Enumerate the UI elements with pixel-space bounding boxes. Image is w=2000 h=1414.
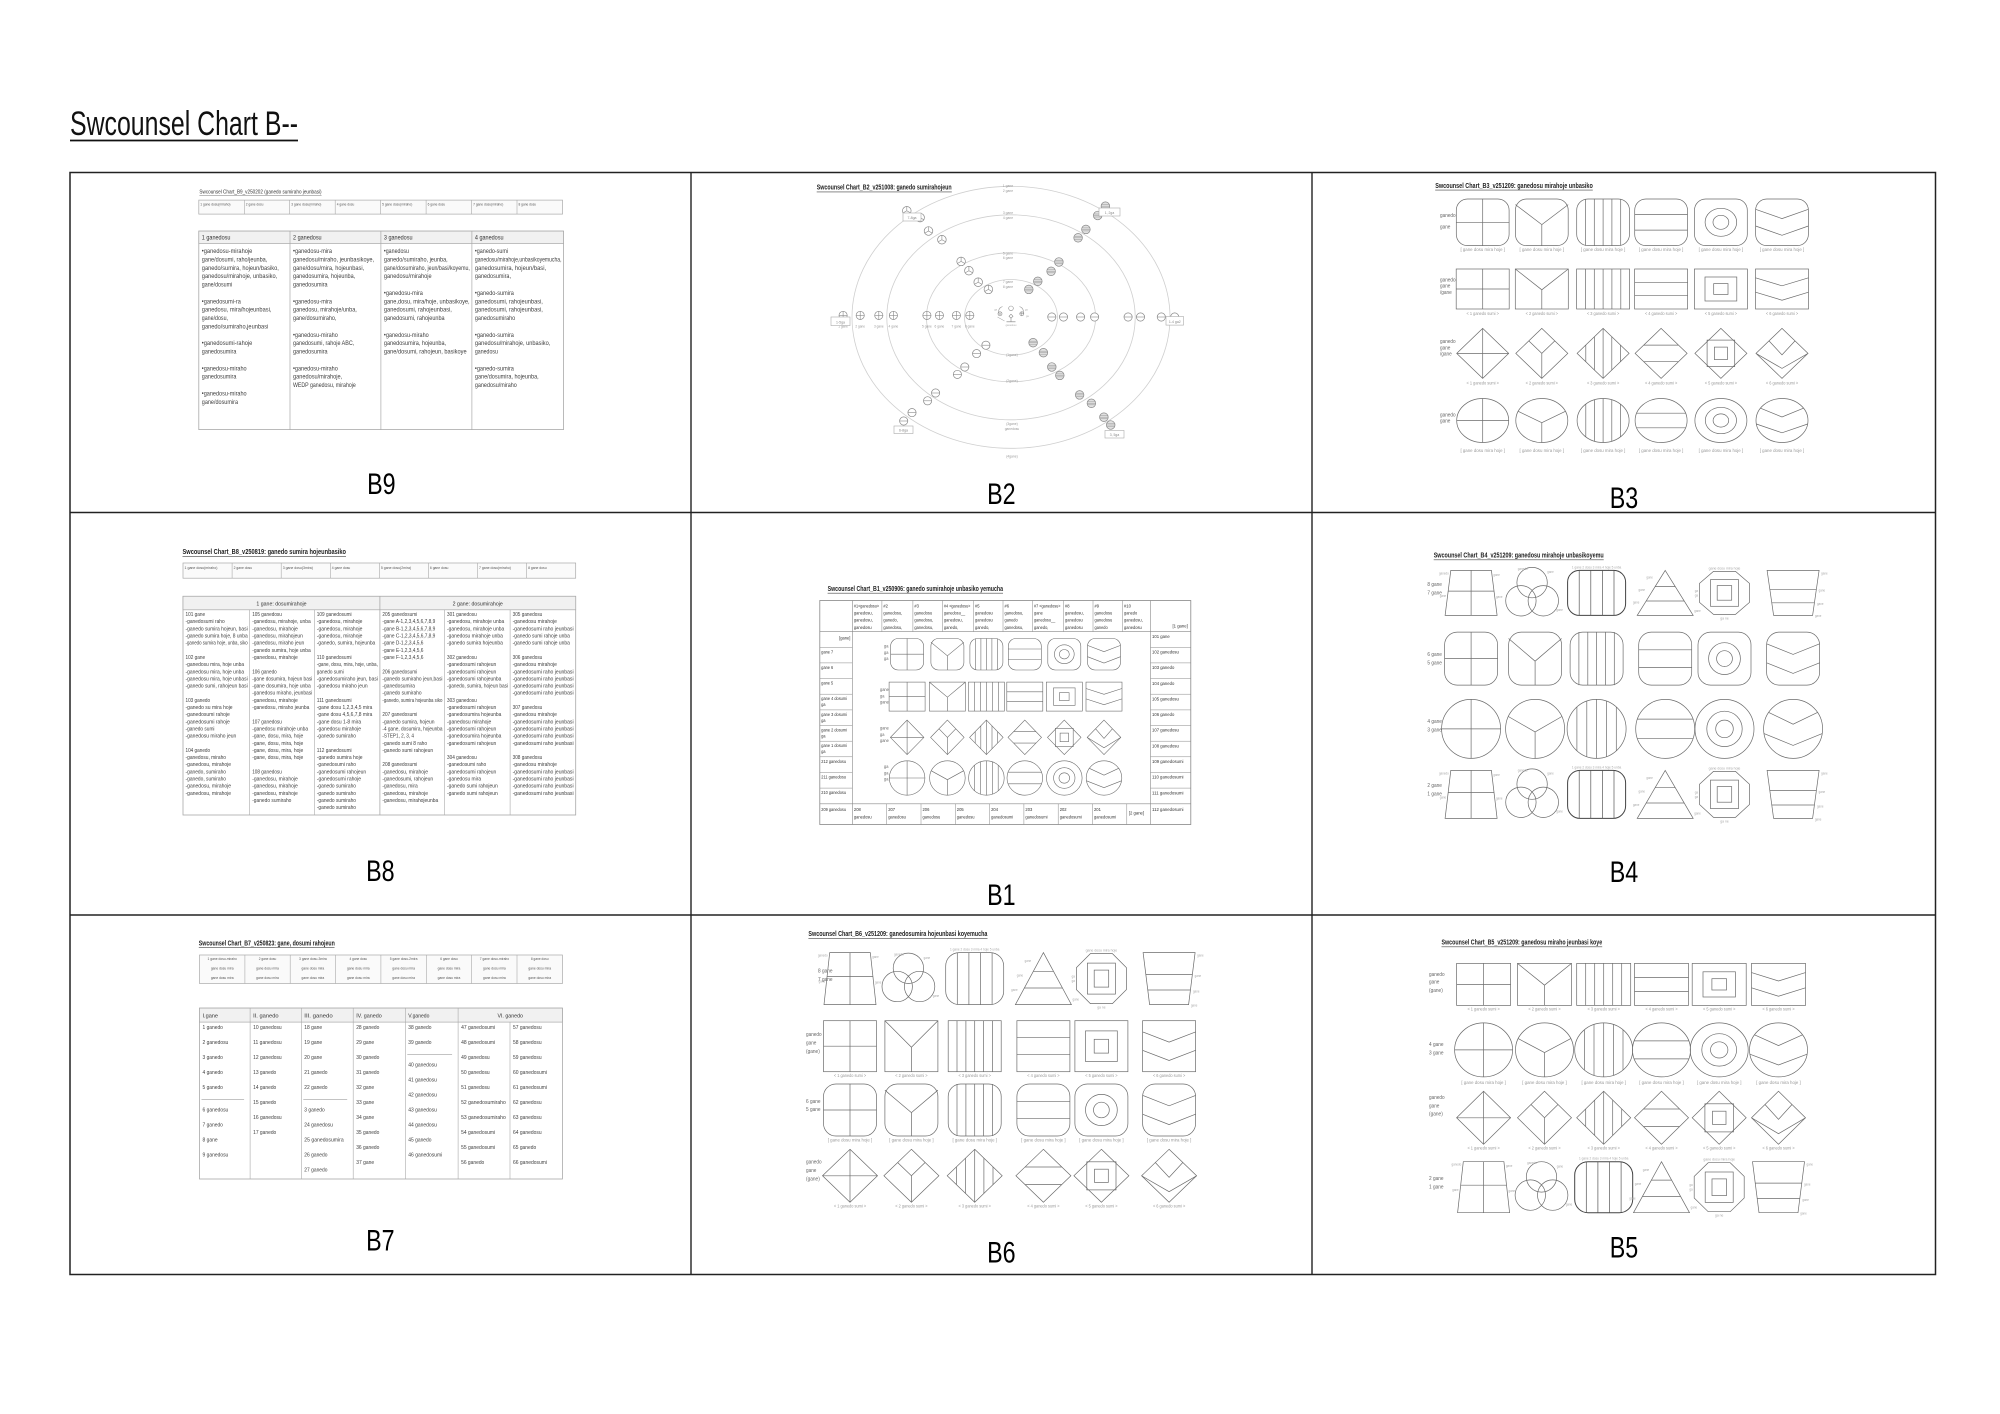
svg-text:Swcounsel Chart B--: Swcounsel Chart B-- [70,105,298,143]
svg-text:-ganedosu mirahoje: -ganedosu mirahoje [513,619,557,625]
svg-text:< 1 ganedo sumi >: < 1 ganedo sumi > [834,1073,867,1078]
svg-text:103 ganedo: 103 ganedo [1152,665,1175,671]
svg-text:ganedosu: ganedosu [923,814,941,819]
svg-text:gane: gane [1496,797,1503,801]
svg-text:-gane, dosu, mira, hoje: -gane, dosu, mira, hoje [252,734,303,740]
svg-text:-ganedosu, mirahoje: -ganedosu, mirahoje [317,619,363,625]
svg-text:-ganedosumi rahojeunba: -ganedosumi rahojeunba [447,676,501,682]
svg-text:55 ganedosumi: 55 ganedosumi [461,1145,495,1151]
svg-text:gane: gane [1639,588,1646,592]
svg-text:gane dosu mira hoje: gane dosu mira hoje [1086,949,1118,953]
svg-text:[ gane dosu mira hoje ]: [ gane dosu mira hoje ] [1520,247,1565,252]
svg-text:ganedosu,: ganedosu, [914,625,933,630]
svg-text:< 2 ganedo sumi >: < 2 ganedo sumi > [1528,1007,1561,1012]
svg-text:gane: gane [1807,1163,1814,1167]
svg-text:-ganedosumi raho jeunbasi: -ganedosumi raho jeunbasi [513,791,574,797]
svg-text:ganedosumi: ganedosumi [991,814,1013,819]
svg-text:1 gane 2 dosu 3 mira 4 hoje 5: 1 gane 2 dosu 3 mira 4 hoje 5 unba [1572,565,1621,569]
svg-text:-ganedo sumira hoje, unba, sik: -ganedo sumira hoje, unba, siko [186,641,248,647]
svg-text:2 gane: 2 gane [1427,783,1442,789]
svg-text:ganedosu,: ganedosu, [883,625,902,630]
svg-text:gane/dosumira, hojeunba,: gane/dosumira, hojeunba, [475,375,539,381]
svg-text:-ganedosu, mirahoje: -ganedosu, mirahoje [186,791,232,797]
svg-text:15 ganedo: 15 ganedo [253,1100,276,1106]
svg-text:-ganedosumi raho jeunbasi: -ganedosumi raho jeunbasi [513,669,574,675]
svg-text:ganedosumira: ganedosumira [202,350,237,356]
svg-text:2 gane dosu: 2 gane dosu [259,957,277,961]
svg-text:ga: ga [884,650,889,655]
svg-text:-ganedosu mirahoje: -ganedosu mirahoje [317,727,361,733]
svg-text:1 gane 2 dosu 3 mira 4 hoje 5: 1 gane 2 dosu 3 mira 4 hoje 5 unba [1572,765,1621,769]
svg-text:ga: ga [1695,795,1698,799]
svg-text:206 ganedosumi: 206 ganedosumi [382,669,417,675]
svg-text:39 ganedo: 39 ganedo [408,1040,431,1046]
svg-text:[1 gane]: [1 gane] [1173,624,1188,629]
svg-text:-ganedosumi raho jeunbasi: -ganedosumi raho jeunbasi [513,734,574,740]
svg-text:18 gane: 18 gane [304,1025,322,1031]
svg-text:(gane): (gane) [806,1177,820,1183]
svg-text:(1gane): (1gane) [1006,353,1018,357]
svg-text:-ganedosu mirahoje: -ganedosu mirahoje [513,712,557,718]
svg-text:-ganedosu, mirahojeun: -ganedosu, mirahojeun [252,634,303,640]
svg-text:ganedo: ganedo [1527,1161,1537,1165]
svg-text:2 ganedosu: 2 ganedosu [203,1040,229,1046]
svg-text:ganedosu: ganedosu [914,611,932,616]
svg-text:-ganedosu, mirahoje: -ganedosu, mirahoje [252,791,298,797]
svg-text:-ganedosu, mirahojeunba: -ganedosu, mirahojeunba [382,798,438,804]
svg-text:32 gane: 32 gane [356,1085,374,1091]
svg-text:[ gane dosu mira hoje ]: [ gane dosu mira hoje ] [1639,247,1684,252]
svg-text:6 gane: 6 gane [1427,652,1442,658]
svg-text:112 ganedosumi: 112 ganedosumi [317,748,352,754]
svg-text:3 gane dosu(3mira): 3 gane dosu(3mira) [283,566,314,570]
svg-text:gane: gane [1646,776,1653,780]
svg-text:ganedo: ganedo [1452,1163,1462,1167]
svg-text:-ganedosumi rahoje: -ganedosumi rahoje [186,712,230,718]
svg-text:ganedosumi, rahojeunbasi,: ganedosumi, rahojeunbasi, [475,299,543,305]
svg-text:-4 gane, dosumira, hojeunba: -4 gane, dosumira, hojeunba [382,727,442,733]
svg-text:-ganedosumi rahojeun: -ganedosumi rahojeun [447,669,496,675]
svg-text:3 gane dosu(miraho): 3 gane dosu(miraho) [291,203,321,207]
svg-text:-ganedosu mirahoje unba: -ganedosu mirahoje unba [252,727,308,733]
svg-text:-ganedosumi rahojeun: -ganedosumi rahojeun [447,705,496,711]
svg-text:Swcounsel Chart_B4_v251209: ga: Swcounsel Chart_B4_v251209: ganedosu mir… [1434,551,1604,560]
svg-text:-ganedosu, mirahoje: -ganedosu, mirahoje [186,762,232,768]
svg-text:gane: gane [1817,804,1824,808]
svg-text:ganedosumi, rahojeunba: ganedosumi, rahojeunba [384,316,445,322]
svg-text:•ganedosu-mira: •ganedosu-mira [384,291,424,297]
svg-text:-ganedosu, mirahoje: -ganedosu, mirahoje [382,791,428,797]
svg-text:gane dosu mira hoje: gane dosu mira hoje [1709,766,1741,770]
svg-text:gane: gane [1629,1196,1636,1200]
svg-text:ga: ga [1695,790,1698,794]
svg-text:37 gane: 37 gane [356,1160,374,1166]
svg-text:-ganedo, sumira hojeunba siko: -ganedo, sumira hojeunba siko [382,698,442,704]
svg-text:41 ganedosu: 41 ganedosu [408,1077,437,1083]
svg-text:3 ganedosu: 3 ganedosu [384,235,413,242]
svg-text:ga ne: ga ne [1715,1214,1723,1218]
svg-text:6 gane: 6 gane [1003,256,1013,260]
svg-text:4 gane dosu: 4 gane dosu [337,203,355,207]
svg-text:< 1 ganedo sumi >: < 1 ganedo sumi > [834,1203,867,1208]
svg-text:8 gane: 8 gane [1427,582,1442,588]
svg-text:102 ganedosu: 102 ganedosu [1152,650,1179,656]
svg-text:ganedosu/mirahoje: ganedosu/mirahoje [384,274,432,280]
svg-text:ganedo/sumira, hojeun/basiko,: ganedo/sumira, hojeun/basiko, [202,266,279,272]
svg-text:gane: gane [1547,570,1554,574]
svg-text:[ gane dosu mira hoje ]: [ gane dosu mira hoje ] [952,1138,997,1143]
svg-text:305 ganedosu: 305 ganedosu [513,612,543,618]
svg-text:[ gane dosu mira hoje ]: [ gane dosu mira hoje ] [1756,1080,1801,1085]
svg-text:V.ganedo: V.ganedo [408,1013,429,1019]
svg-text:< 3 ganedo sumi >: < 3 ganedo sumi > [1588,1146,1621,1151]
svg-text:ganedosu/miraho, jeunbasikoye,: ganedosu/miraho, jeunbasikoye, [293,258,374,264]
svg-text:ganedosu, mira/hojeunbasi,: ganedosu, mira/hojeunbasi, [202,308,272,314]
svg-text:8 gane: 8 gane [818,968,833,974]
svg-text:8 gane dosu: 8 gane dosu [531,957,549,961]
svg-text:Swcounsel Chart_B2_v251008: ga: Swcounsel Chart_B2_v251008: ganedo sumir… [817,183,952,192]
svg-text:28 ganedo: 28 ganedo [356,1025,379,1031]
svg-text:1 ganedo: 1 ganedo [203,1025,223,1031]
svg-text:ganedosu,: ganedosu, [1065,611,1084,616]
svg-text:5 ganedo: 5 ganedo [203,1085,223,1091]
svg-text:-ganedo sumi rahojeun: -ganedo sumi rahojeun [447,791,498,797]
svg-text:209 ganedosu: 209 ganedosu [821,807,846,812]
svg-text:•ganedosu-miraho: •ganedosu-miraho [202,391,247,397]
svg-text:ganedo/sumiraho,jeunbasi: ganedo/sumiraho,jeunbasi [202,324,268,330]
svg-text:[ gane dosu mira hoje ]: [ gane dosu mira hoje ] [1697,1080,1742,1085]
svg-text:7 gane: 7 gane [952,325,962,329]
svg-text:-ganedosumi raho jeunbasi: -ganedosumi raho jeunbasi [513,691,574,697]
svg-text:107 ganedosu: 107 ganedosu [1152,728,1179,734]
svg-text:-gane, dosu, mira, hoje: -gane, dosu, mira, hoje [252,755,303,761]
svg-text:gane 7: gane 7 [821,649,833,654]
svg-text:B9: B9 [367,468,396,501]
svg-text:26 ganedo: 26 ganedo [304,1152,327,1158]
svg-text:gane dosu mira: gane dosu mira [256,967,279,971]
svg-text:gane: gane [880,726,889,731]
svg-text:gane: gane [933,994,940,998]
svg-text:7 gane dosu(miraho): 7 gane dosu(miraho) [473,203,503,207]
svg-text:102 gane: 102 gane [186,655,206,661]
svg-text:ganedosu: ganedosu [888,814,906,819]
svg-text:-gane B-1,2,3,4,5,6,7,8,9: -gane B-1,2,3,4,5,6,7,8,9 [382,626,435,632]
svg-text:-ganedo sumiraho: -ganedo sumiraho [317,791,356,797]
svg-text:gane dosu mira: gane dosu mira [438,967,461,971]
svg-text:63 ganedosu: 63 ganedosu [513,1115,542,1121]
svg-text:•ganedosu-mira: •ganedosu-mira [293,249,333,255]
svg-text:gane: gane [1493,573,1500,577]
svg-text:< 4 ganedo sumi >: < 4 ganedo sumi > [1645,311,1678,316]
svg-text:gane: gane [872,955,879,959]
svg-text:ganedosu/mirahoje,unbasikoyemu: ganedosu/mirahoje,unbasikoyemucha, [475,258,562,264]
svg-text:•ganedosu-mira: •ganedosu-mira [293,299,333,305]
svg-text:65 ganedo: 65 ganedo [513,1145,536,1151]
svg-text:-ganedo, sumiraho: -ganedo, sumiraho [186,769,227,775]
svg-text:6 gane dosu: 6 gane dosu [430,566,449,570]
svg-text:ga: ga [1026,314,1029,318]
svg-text:24 ganedosu: 24 ganedosu [304,1122,333,1128]
svg-text:gane: gane [1802,1198,1809,1202]
svg-text:27 ganedo: 27 ganedo [304,1167,327,1173]
svg-text:-ganedosu mirahoje unba: -ganedosu mirahoje unba [447,634,503,640]
svg-text:B7: B7 [366,1224,395,1257]
svg-text:-gane dosumira, hoje unba: -gane dosumira, hoje unba [252,684,311,690]
svg-text:(2gane): (2gane) [1006,379,1018,383]
svg-text:ga: ga [1072,979,1075,983]
svg-text:14 ganedo: 14 ganedo [253,1085,276,1091]
svg-text:gane: gane [1452,1188,1459,1192]
svg-text:1 gane: 1 gane [1427,791,1442,797]
svg-text:51 ganedosu: 51 ganedosu [461,1085,490,1091]
svg-text:gane: gane [924,956,931,960]
svg-text:gane/dosumi, rahojeun, basikoy: gane/dosumi, rahojeun, basikoye [384,350,467,356]
svg-text:-ganedo sumi: -ganedo sumi [186,727,215,733]
svg-text:ganedosu: ganedosu [1006,323,1017,327]
svg-text:[ gane dosu mira hoje ]: [ gane dosu mira hoje ] [1461,1080,1506,1085]
svg-text:5 gane: 5 gane [806,1107,821,1113]
svg-text:ganedosumi: ganedosumi [1094,814,1116,819]
svg-text:ganedo: ganedo [1440,413,1456,419]
svg-text:-ganedo sumiraho: -ganedo sumiraho [252,798,291,804]
svg-text:-ganedo sumi rahojeun: -ganedo sumi rahojeun [447,784,498,790]
svg-text:ga: ga [821,702,826,707]
svg-text:gane/dosu,: gane/dosu, [202,316,228,322]
svg-text:gane dosu mira: gane dosu mira [392,967,415,971]
svg-text:-ganedo sumira, hoje unba: -ganedo sumira, hoje unba [252,648,311,654]
svg-text:-gane, dosu, mira, hoje, unba,: -gane, dosu, mira, hoje, unba, [317,662,378,668]
svg-text:gane dosu mira hoje: gane dosu mira hoje [1703,1158,1735,1162]
svg-text:ganedosu: ganedosu [1124,625,1142,630]
svg-text:gane: gane [1025,959,1032,963]
svg-text:205 ganedosumi: 205 ganedosumi [382,612,417,618]
svg-text:1 gane dosu(miraho): 1 gane dosu(miraho) [185,566,219,570]
svg-text:ganedosu,: ganedosu, [1005,625,1024,630]
svg-text:66 ganedosumi: 66 ganedosumi [513,1160,547,1166]
svg-text:< 1 ganedo sumi >: < 1 ganedo sumi > [1467,1146,1500,1151]
svg-text:306 ganedosu: 306 ganedosu [513,655,543,661]
svg-text:< 4 ganedo sumi >: < 4 ganedo sumi > [1027,1203,1060,1208]
svg-text:gane/dosumi: gane/dosumi [202,283,232,289]
svg-text:ganedosu: ganedosu [1005,427,1020,431]
svg-text:ga: ga [994,308,997,312]
svg-text:35 ganedo: 35 ganedo [356,1130,379,1136]
svg-text:303 ganedosu: 303 ganedosu [447,698,477,704]
svg-text:ga: ga [884,644,889,649]
svg-text:58 ganedosu: 58 ganedosu [513,1040,542,1046]
svg-text:210 ganedosu: 210 ganedosu [821,790,846,795]
svg-text:gane: gane [1547,772,1554,776]
svg-text:1 gane: dosumirahoje: 1 gane: dosumirahoje [256,601,306,607]
svg-text:205: 205 [957,807,964,812]
svg-text:8 gane: 8 gane [1003,285,1013,289]
svg-text:-ganedosu, mirahoje: -ganedosu, mirahoje [382,769,428,775]
svg-text:[ gane dosu mira hoje ]: [ gane dosu mira hoje ] [1760,247,1805,252]
svg-text:-ganedosumi rahojeun: -ganedosumi rahojeun [447,662,496,668]
svg-text:61 ganedosumi: 61 ganedosumi [513,1085,547,1091]
svg-text:302 ganedosu: 302 ganedosu [447,655,477,661]
svg-text:31 ganedo: 31 ganedo [356,1070,379,1076]
svg-text:[ gane dosu mira hoje ]: [ gane dosu mira hoje ] [1639,1080,1684,1085]
svg-text:112 ganedosumi: 112 ganedosumi [1152,807,1184,813]
svg-text:3 ganedo: 3 ganedo [203,1055,223,1061]
svg-text:4 gane: 4 gane [1003,216,1013,220]
svg-text:ganedosu,: ganedosu, [883,611,902,616]
svg-text:ganedosumi: ganedosumi [1060,814,1082,819]
svg-text:304 ganedosu: 304 ganedosu [447,755,477,761]
svg-text:[gane]: [gane] [839,636,850,641]
svg-text:#1<ganedosu>: #1<ganedosu> [854,603,879,608]
svg-text:-ganedosu, mirahoje: -ganedosu, mirahoje [186,784,232,790]
svg-text:8 gane dosu: 8 gane dosu [528,566,547,570]
svg-text:ga: ga [1072,975,1075,979]
svg-text:gane: gane [1633,803,1640,807]
svg-text:-ganedo sumiraho: -ganedo sumiraho [382,691,421,697]
svg-text:< 3 ganedo sumi >: < 3 ganedo sumi > [1587,381,1620,386]
svg-text:(4gane): (4gane) [1006,455,1018,459]
svg-text:gane: gane [1800,1212,1807,1216]
svg-text:ganedosu: ganedosu [854,814,872,819]
svg-text:-ganedosumi raho jeunbasi: -ganedosumi raho jeunbasi [513,719,574,725]
svg-text:ga: ga [1695,589,1698,593]
svg-text:-ganedosumi raho jeunbasi: -ganedosumi raho jeunbasi [513,769,574,775]
svg-text:< 5 ganedo sumi >: < 5 ganedo sumi > [1705,381,1738,386]
svg-text:ganedo,: ganedo, [975,625,989,630]
svg-text:-ganedosu, mirahoje unba: -ganedosu, mirahoje unba [447,619,504,625]
svg-text:-ganedosu mirahoje: -ganedosu mirahoje [447,719,491,725]
svg-text:ganedosu__: ganedosu__ [944,611,966,616]
svg-text:47 ganedosumi: 47 ganedosumi [461,1025,495,1031]
svg-text:gane: gane [1017,974,1024,978]
svg-text:#3: #3 [914,603,919,608]
svg-text:gane 6: gane 6 [821,665,833,670]
svg-text:gane,dosu, mira/hoje, unbasiko: gane,dosu, mira/hoje, unbasikoye, [384,299,470,305]
svg-text:gane: gane [806,1168,816,1174]
svg-text:207 ganedosumi: 207 ganedosumi [382,712,417,718]
svg-text:2 gane: 2 gane [1429,1176,1444,1182]
svg-text:3 ganedo: 3 ganedo [304,1107,324,1113]
svg-text:gane: gane [1506,1164,1513,1168]
svg-text:101 gane: 101 gane [186,612,206,618]
svg-text:106 ganedo: 106 ganedo [1152,712,1175,718]
svg-text:ga: ga [884,656,889,661]
svg-text:< 3 ganedo sumi >: < 3 ganedo sumi > [1587,311,1620,316]
svg-text:-ganedosu mira, hoje unbasi: -ganedosu mira, hoje unbasi [186,676,248,682]
svg-text:gane: gane [880,687,889,692]
svg-text:13 ganedo: 13 ganedo [253,1070,276,1076]
svg-text:ga: ga [821,734,826,739]
svg-text:-ganedosumi raho jeunbasi: -ganedosumi raho jeunbasi [513,727,574,733]
svg-text:5 gane dosu(miraho): 5 gane dosu(miraho) [382,203,412,207]
svg-text:ganedosu,: ganedosu, [914,618,933,623]
svg-text:-ganedosu, miraho jeunba: -ganedosu, miraho jeunba [252,705,309,711]
svg-text:gane: gane [1557,1164,1564,1168]
svg-text:< 5 ganedo sumi >: < 5 ganedo sumi > [1703,1007,1736,1012]
svg-text:gane dosu mira: gane dosu mira [528,976,551,980]
svg-text:6 gane: 6 gane [935,325,945,329]
svg-text:[ gane dosu mira hoje ]: [ gane dosu mira hoje ] [1021,1138,1066,1143]
svg-text:-ganedo sumira hojeun, basi: -ganedo sumira hojeun, basi [186,626,248,632]
svg-text:ganedosu: ganedosu [975,618,993,623]
svg-text:gane: gane [806,1040,816,1046]
svg-text:10 ganedosu: 10 ganedosu [253,1025,282,1031]
svg-text:[ gane dosu mira hoje ]: [ gane dosu mira hoje ] [1760,448,1805,453]
svg-text:[ gane dosu mira hoje ]: [ gane dosu mira hoje ] [828,1138,873,1143]
svg-text:2 gane dosu: 2 gane dosu [246,203,264,207]
svg-text:< 6 ganedo sumi >: < 6 ganedo sumi > [1766,381,1799,386]
svg-text:7 gane: 7 gane [1427,590,1442,596]
svg-text:< 6 ganedo sumi >: < 6 ganedo sumi > [1766,311,1799,316]
svg-text:#9: #9 [1095,603,1100,608]
svg-text:ganedosu: ganedosu [1065,625,1083,630]
svg-text:gane dosu mira: gane dosu mira [483,976,506,980]
svg-text:-ganedo sumira hojeunba: -ganedo sumira hojeunba [447,641,503,647]
svg-text:50 ganedosu: 50 ganedosu [461,1070,490,1076]
svg-text:-ganedosu, mirahoje: -ganedosu, mirahoje [252,626,298,632]
svg-text:-ganedo, sumira, hojeunba: -ganedo, sumira, hojeunba [317,641,376,647]
svg-text:3 gane: 3 gane [1003,211,1013,215]
svg-text:[ gane dosu mira hoje ]: [ gane dosu mira hoje ] [1460,247,1505,252]
svg-text:1 gane dosu-miraho: 1 gane dosu-miraho [208,957,237,961]
svg-text:[2 gane]: [2 gane] [1129,810,1144,815]
svg-text:-ganedosu, mirahoje: -ganedosu, mirahoje [252,655,298,661]
svg-text:38 ganedo: 38 ganedo [408,1025,431,1031]
svg-text:ganedosu,: ganedosu, [1005,611,1024,616]
svg-text:-ganedo sumiraho: -ganedo sumiraho [317,798,356,804]
svg-text:ganedosumira: ganedosumira [293,350,328,356]
svg-text:ganedo: ganedo [1124,611,1138,616]
svg-text:(gane): (gane) [806,1049,820,1055]
svg-text:1-5ga: 1-5ga [836,320,846,324]
svg-text:Swcounsel Chart_B1_v250906: ga: Swcounsel Chart_B1_v250906: ganedo sumir… [828,584,1004,593]
svg-text:104 ganedo: 104 ganedo [1152,681,1175,687]
svg-text:-ganedosumi raho jeunbasi: -ganedosumi raho jeunbasi [513,784,574,790]
svg-text:3 gane: 3 gane [1429,1051,1444,1057]
svg-text:207: 207 [888,807,895,812]
svg-text:#6: #6 [1005,603,1010,608]
svg-text:-ganedo sumi 8 raho: -ganedo sumi 8 raho [382,741,427,747]
svg-text:ganedo: ganedo [894,953,904,957]
svg-text:B2: B2 [987,478,1016,511]
svg-text:34 gane: 34 gane [356,1115,374,1121]
svg-text:21 ganedo: 21 ganedo [304,1070,327,1076]
svg-text:•ganedosu-miraho: •ganedosu-miraho [384,333,429,339]
svg-text:gane: gane [1556,810,1563,814]
svg-text:gane/dosumiraho,: gane/dosumiraho, [293,316,337,322]
svg-text:gane dosu mira: gane dosu mira [347,967,370,971]
svg-text:ganedosu__: ganedosu__ [1034,618,1056,623]
svg-text:< 5 ganedo sumi >: < 5 ganedo sumi > [1705,311,1738,316]
svg-text:ga: ga [1689,1188,1692,1192]
svg-text:gane dosu mira: gane dosu mira [302,976,325,980]
svg-text:gane: gane [1191,1004,1198,1008]
svg-text:II. ganedo: II. ganedo [253,1013,279,1019]
svg-text:ganedosu: ganedosu [854,625,872,630]
svg-text:36 ganedo: 36 ganedo [356,1145,379,1151]
svg-text:•ganedosu-mirahoje: •ganedosu-mirahoje [202,249,253,255]
svg-text:-ganedosu, mirahoje: -ganedosu, mirahoje [317,626,363,632]
svg-text:gane dosu mira: gane dosu mira [211,976,234,980]
svg-text:4 ganedosu: 4 ganedosu [475,235,504,242]
svg-text:110 ganedosumi: 110 ganedosumi [317,655,352,661]
svg-text:gane: gane [1011,988,1018,992]
svg-text:gane: gane [1815,817,1822,821]
svg-text:gane 1 dosumi: gane 1 dosumi [821,743,847,748]
svg-text:ganedo: ganedo [1440,339,1456,345]
svg-text:-ganedosumira hojeunba: -ganedosumira hojeunba [447,712,501,718]
svg-text:gane: gane [875,981,882,985]
svg-text:gane: gane [1819,790,1826,794]
